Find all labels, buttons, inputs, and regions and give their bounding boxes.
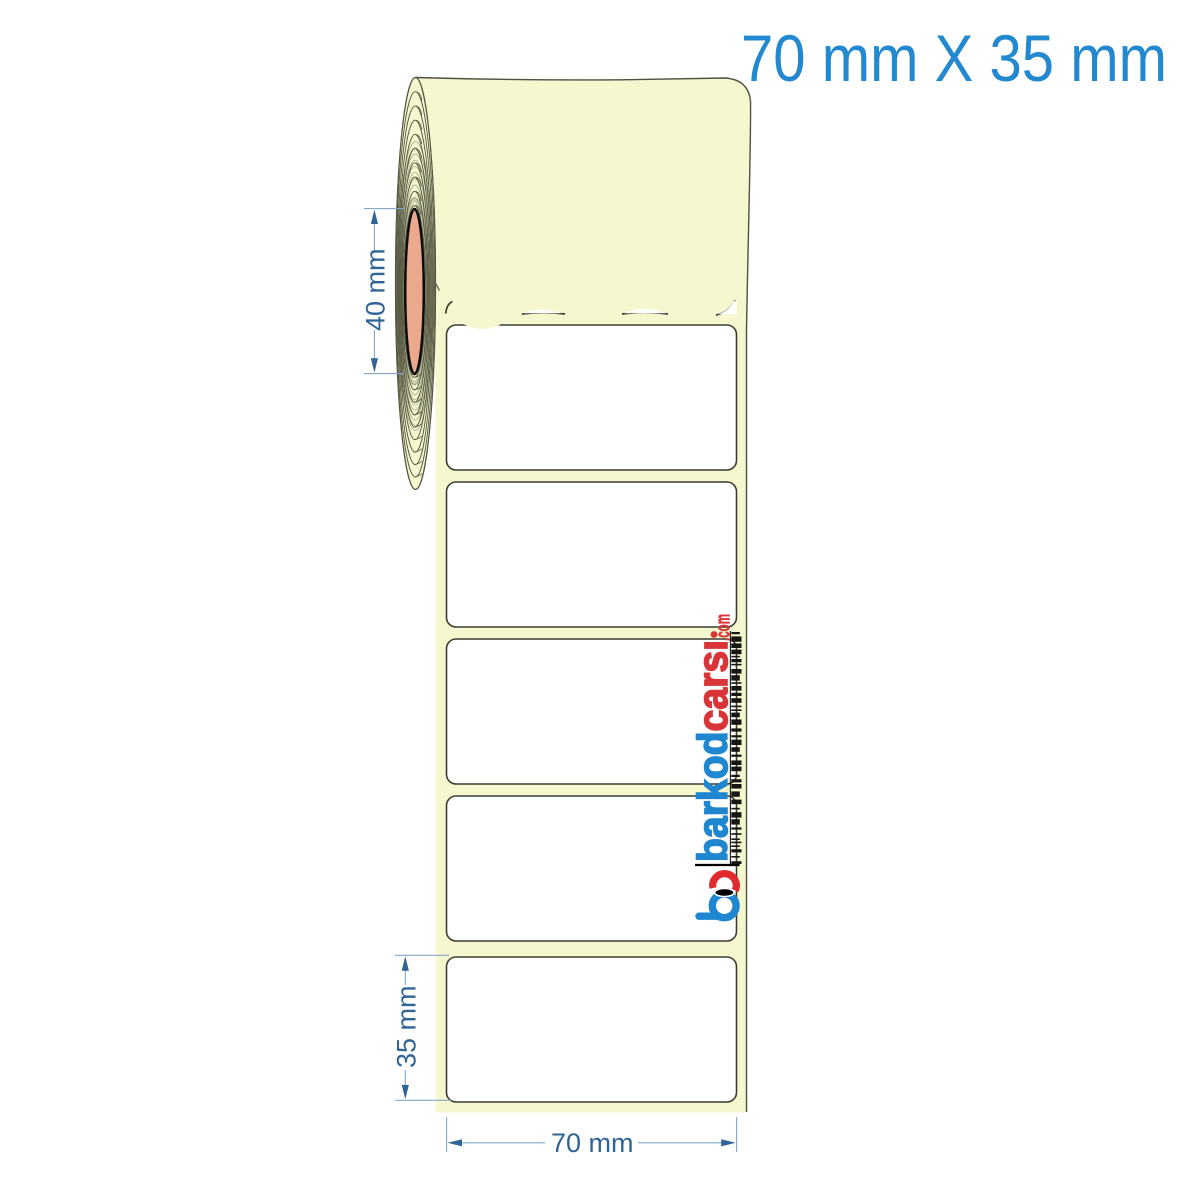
svg-text:barkodcarsı: barkodcarsı [689, 640, 736, 862]
svg-text:70 mm: 70 mm [551, 1128, 634, 1158]
svg-text:40 mm: 40 mm [361, 248, 391, 331]
svg-text:35 mm: 35 mm [392, 985, 422, 1068]
svg-text:70 mm X 35 mm: 70 mm X 35 mm [741, 21, 1167, 95]
